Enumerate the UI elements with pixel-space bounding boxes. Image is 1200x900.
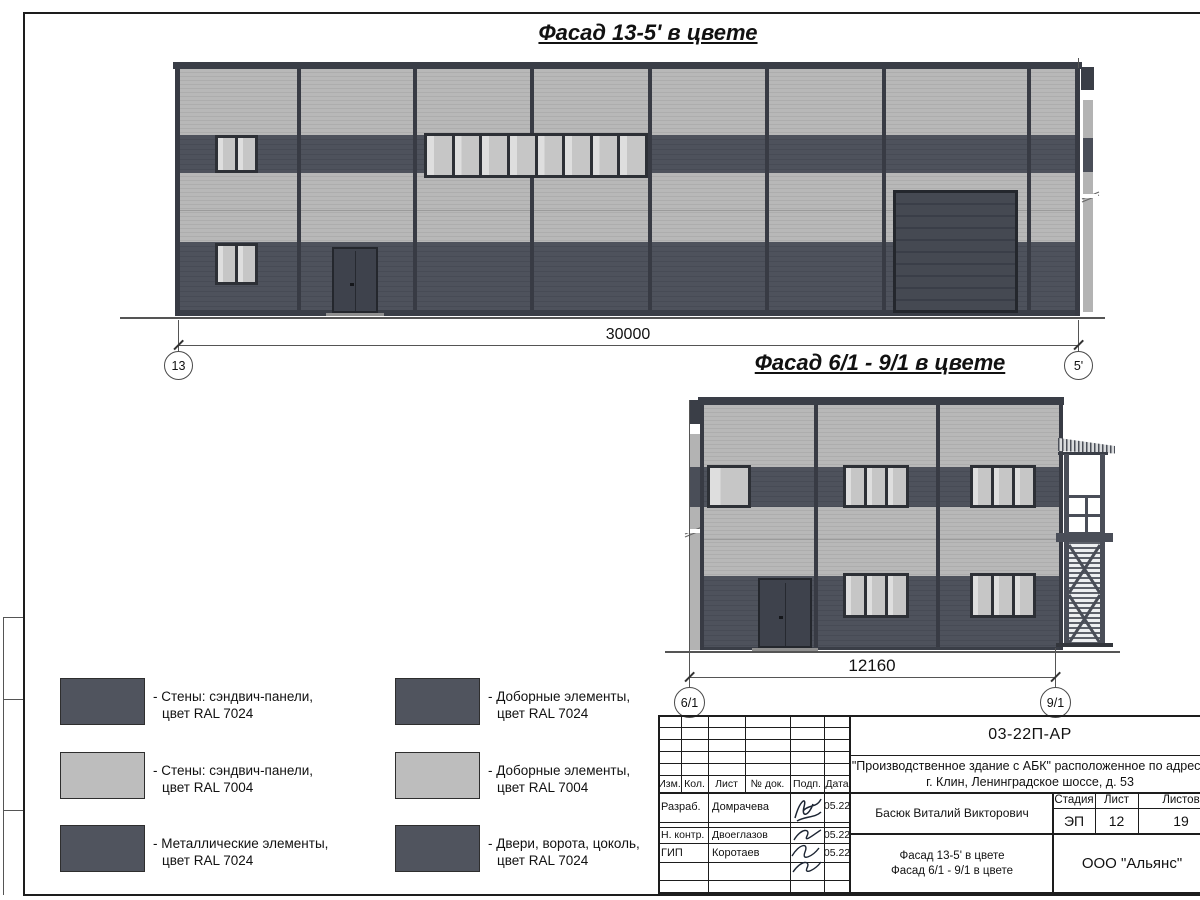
break-mark	[1081, 190, 1101, 204]
tb-line	[658, 792, 1200, 794]
tb-line	[850, 833, 1200, 835]
tb-col-ndok: № док.	[745, 777, 790, 791]
window-pane	[455, 136, 480, 175]
legend-line: - Доборные элементы,	[488, 762, 718, 779]
legend-swatch-doors-7024	[395, 825, 480, 872]
window-pane	[867, 576, 885, 615]
frame-top	[23, 12, 1200, 14]
legend-line: - Двери, ворота, цоколь,	[488, 835, 728, 852]
tb-line	[849, 715, 851, 893]
panel-band-light	[175, 69, 1080, 135]
tb-line	[1052, 792, 1054, 893]
drawing-sheet: { "drawing": { "facade1": { "title": "Фа…	[0, 0, 1200, 900]
frame-left	[23, 12, 25, 895]
tb-line	[745, 715, 746, 792]
mullion	[814, 405, 818, 647]
mullion	[936, 405, 940, 647]
window-pane	[973, 576, 991, 615]
mullion	[648, 69, 652, 310]
legend-line: цвет RAL 7004	[153, 779, 383, 796]
entrance-door	[332, 247, 378, 313]
tb-name-developer: Домрачева	[712, 801, 769, 813]
legend-line: цвет RAL 7024	[153, 852, 393, 869]
mullion	[297, 69, 301, 310]
window	[843, 573, 909, 618]
stair-post	[1100, 454, 1105, 647]
facade2-dimension: 12160	[772, 657, 972, 674]
legend-label: - Металлические элементы, цвет RAL 7024	[153, 835, 393, 869]
tb-sheet-value: 12	[1095, 809, 1138, 832]
dimension-line	[689, 677, 1055, 678]
window-pane	[538, 136, 563, 175]
window	[970, 573, 1036, 618]
door-leaf-divider	[785, 583, 786, 646]
tb-line	[658, 822, 850, 823]
legend-line: - Стены: сэндвич-панели,	[153, 688, 383, 705]
facade1-dimension: 30000	[528, 327, 728, 343]
tb-date-developer: 05.22	[824, 799, 850, 813]
legend-line: цвет RAL 7024	[488, 852, 728, 869]
stair-tower	[1058, 435, 1118, 650]
tb-doc-number: 03-22П-АР	[851, 720, 1200, 750]
legend-line: - Металлические элементы,	[153, 835, 393, 852]
corner-trim	[175, 69, 180, 316]
facade1-title: Фасад 13-5' в цвете	[423, 18, 873, 48]
axis-marker-9-1: 9/1	[1040, 687, 1071, 718]
tb-line	[850, 755, 1200, 756]
tb-role-developer: Разраб.	[661, 801, 701, 813]
ribbon-window	[424, 133, 648, 178]
legend-swatch-trim-7004	[395, 752, 480, 799]
tb-line	[658, 715, 1200, 717]
mullion	[413, 69, 417, 310]
tb-line	[658, 880, 850, 881]
parapet-cap	[173, 62, 1082, 69]
window-pane	[994, 468, 1012, 505]
facade2-title: Фасад 6/1 - 9/1 в цвете	[655, 348, 1105, 378]
tb-sheet-label: Лист	[1095, 793, 1138, 807]
door-handle	[350, 283, 354, 286]
window-pane	[218, 138, 235, 170]
signature	[791, 794, 824, 824]
window-pane	[888, 576, 906, 615]
extension-line	[1078, 58, 1079, 68]
legend-swatch-walls-7004	[60, 752, 145, 799]
stair-base	[1056, 643, 1113, 647]
tb-stage-label: Стадия	[1053, 793, 1095, 807]
tb-line	[790, 715, 791, 893]
corner-trim	[1075, 69, 1080, 316]
tb-line	[658, 727, 850, 728]
extension-line	[689, 400, 690, 695]
tb-drawing-name-line1: Фасад 13-5' в цвете	[852, 849, 1052, 864]
tb-line	[824, 715, 825, 893]
tb-approver: Басюк Виталий Викторович	[852, 794, 1052, 832]
legend-swatch-walls-7024	[60, 678, 145, 725]
legend-label: - Стены: сэндвич-панели, цвет RAL 7024	[153, 688, 383, 722]
margin-divider	[3, 617, 23, 618]
window-pane	[710, 468, 748, 505]
corner-return-cap	[1081, 67, 1094, 90]
mullion	[882, 69, 886, 310]
legend-line: цвет RAL 7024	[488, 705, 718, 722]
corner-return-dark	[1083, 138, 1093, 172]
axis-marker-13: 13	[164, 351, 193, 380]
window	[843, 465, 909, 508]
mullion	[530, 69, 534, 310]
stair-platform	[1056, 533, 1113, 542]
window-pane	[482, 136, 507, 175]
door-threshold	[326, 313, 384, 316]
window-pane	[994, 576, 1012, 615]
ground-line-1	[120, 317, 1105, 319]
window-pane	[846, 468, 864, 505]
tb-project-line2: г. Клин, Ленинградское шоссе, д. 53	[851, 774, 1200, 790]
tb-sheets-label: Листов	[1140, 793, 1200, 807]
railing-bar	[1067, 514, 1102, 517]
window-pane	[218, 246, 235, 282]
stair-bracing	[1069, 542, 1100, 646]
signature	[789, 826, 825, 878]
legend-swatch-metal-7024	[60, 825, 145, 872]
window-pane	[1015, 468, 1033, 505]
tb-col-data: Дата	[824, 777, 850, 791]
window-pane	[238, 246, 255, 282]
window-pane	[973, 468, 991, 505]
tb-sheets-value: 19	[1140, 809, 1200, 832]
legend-line: - Стены: сэндвич-панели,	[153, 762, 383, 779]
legend-line: цвет RAL 7004	[488, 779, 718, 796]
window-pane	[888, 468, 906, 505]
panel-joint	[700, 539, 1063, 540]
corner-trim	[700, 405, 704, 650]
margin-column-line	[3, 617, 4, 895]
ground-line-2	[665, 651, 1120, 653]
entrance-door	[758, 578, 812, 648]
tb-date-ncontrol: 05.22	[824, 828, 850, 842]
panel-band-light	[700, 507, 1063, 576]
door-leaf-divider	[355, 251, 356, 311]
tb-company: ООО "Альянс"	[1054, 834, 1200, 892]
facade2-wall	[700, 397, 1063, 650]
tb-drawing-name-line2: Фасад 6/1 - 9/1 в цвете	[852, 864, 1052, 879]
tb-date-gip: 05.22	[824, 846, 850, 860]
margin-divider	[3, 699, 23, 700]
window	[970, 465, 1036, 508]
door-handle	[779, 616, 783, 619]
tb-line	[658, 751, 850, 752]
window-pane	[510, 136, 535, 175]
window-pane	[427, 136, 452, 175]
panel-band-light	[700, 405, 1063, 467]
legend-line: цвет RAL 7024	[153, 705, 383, 722]
tb-col-podp: Подп.	[790, 777, 824, 791]
mullion	[765, 69, 769, 310]
legend-label: - Доборные элементы, цвет RAL 7024	[488, 688, 718, 722]
legend-line: - Доборные элементы,	[488, 688, 718, 705]
tb-line	[1095, 792, 1096, 833]
window-pane	[846, 576, 864, 615]
legend-swatch-trim-7024	[395, 678, 480, 725]
tb-stage-value: ЭП	[1053, 809, 1095, 832]
window-pane	[593, 136, 618, 175]
window-pane	[620, 136, 645, 175]
tb-project-line1: "Производственное здание с АБК" располож…	[851, 758, 1200, 774]
facade1-elevation	[175, 62, 1095, 320]
sectional-gate	[893, 190, 1018, 313]
corner-return	[1083, 100, 1093, 312]
legend-label: - Двери, ворота, цоколь, цвет RAL 7024	[488, 835, 728, 869]
balcony-railing	[1064, 495, 1105, 535]
corner-return-dark	[690, 467, 700, 507]
tb-line	[1138, 792, 1139, 833]
window-pane	[1015, 576, 1033, 615]
tb-line	[1052, 808, 1200, 809]
frame-bottom	[23, 894, 1200, 896]
window	[707, 465, 751, 508]
facade2-elevation	[690, 397, 1120, 655]
tb-line	[658, 827, 850, 828]
window-pane	[565, 136, 590, 175]
mullion	[1027, 69, 1031, 310]
tb-drawing-name: Фасад 13-5' в цвете Фасад 6/1 - 9/1 в цв…	[852, 849, 1052, 879]
parapet-cap	[698, 397, 1064, 405]
window-pane	[867, 468, 885, 505]
legend-label: - Стены: сэндвич-панели, цвет RAL 7004	[153, 762, 383, 796]
margin-divider	[3, 810, 23, 811]
legend-label: - Доборные элементы, цвет RAL 7004	[488, 762, 718, 796]
window	[215, 243, 258, 285]
window	[215, 135, 258, 173]
window-pane	[238, 138, 255, 170]
dimension-line	[178, 345, 1078, 346]
tb-line	[658, 739, 850, 740]
